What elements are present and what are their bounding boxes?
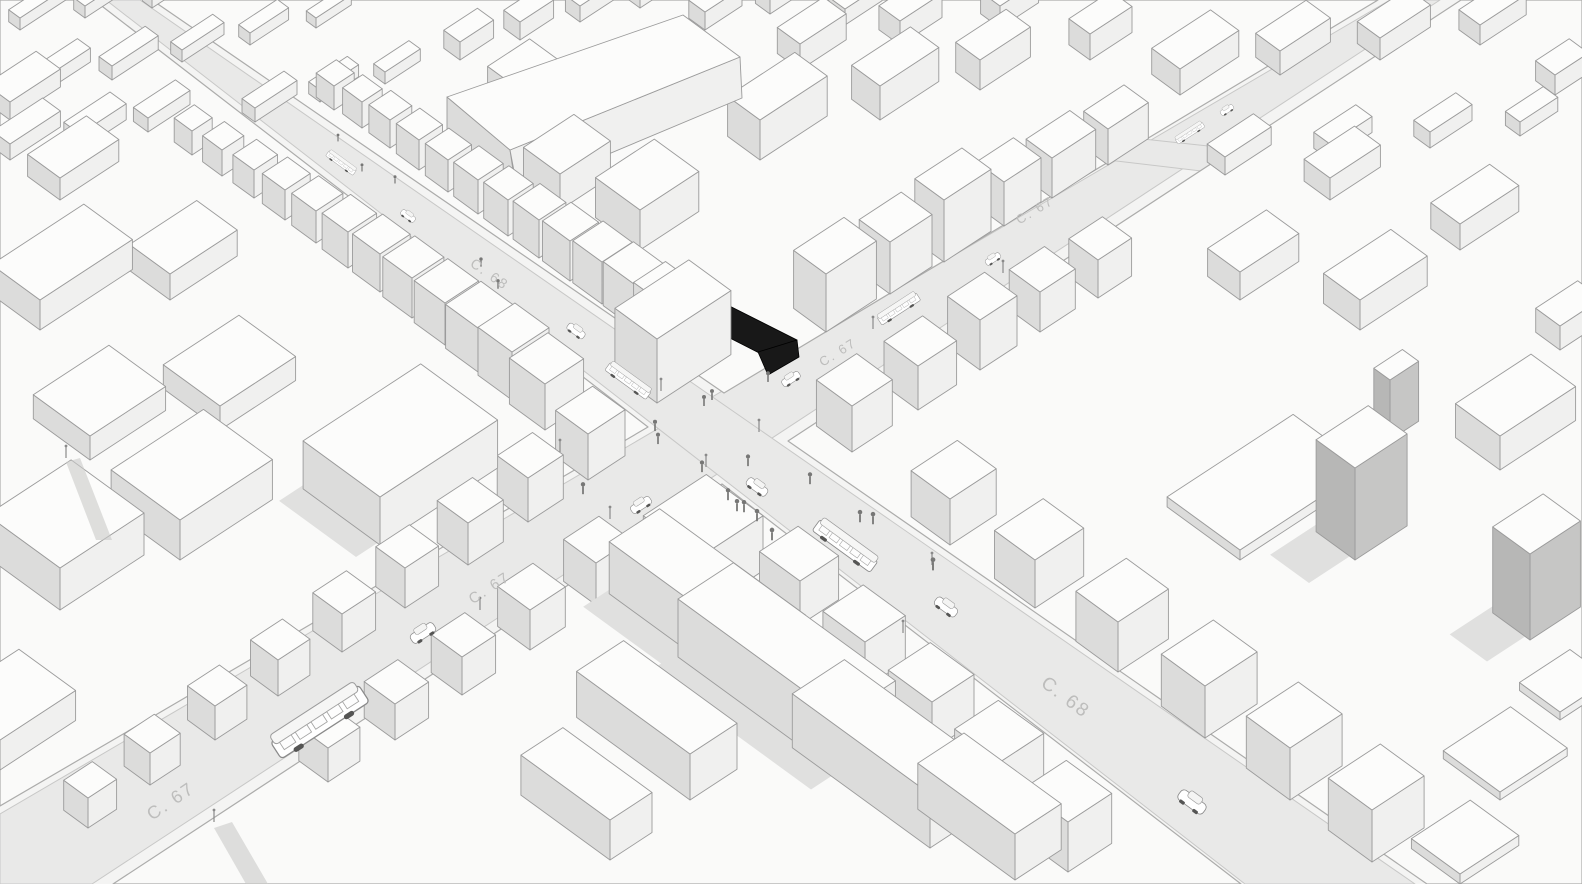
map-canvas[interactable]: C. 68C. 67C. 67C. 67C. 68C. 67: [0, 0, 1582, 884]
city-scene[interactable]: C. 68C. 67C. 67C. 67C. 68C. 67: [0, 0, 1582, 884]
